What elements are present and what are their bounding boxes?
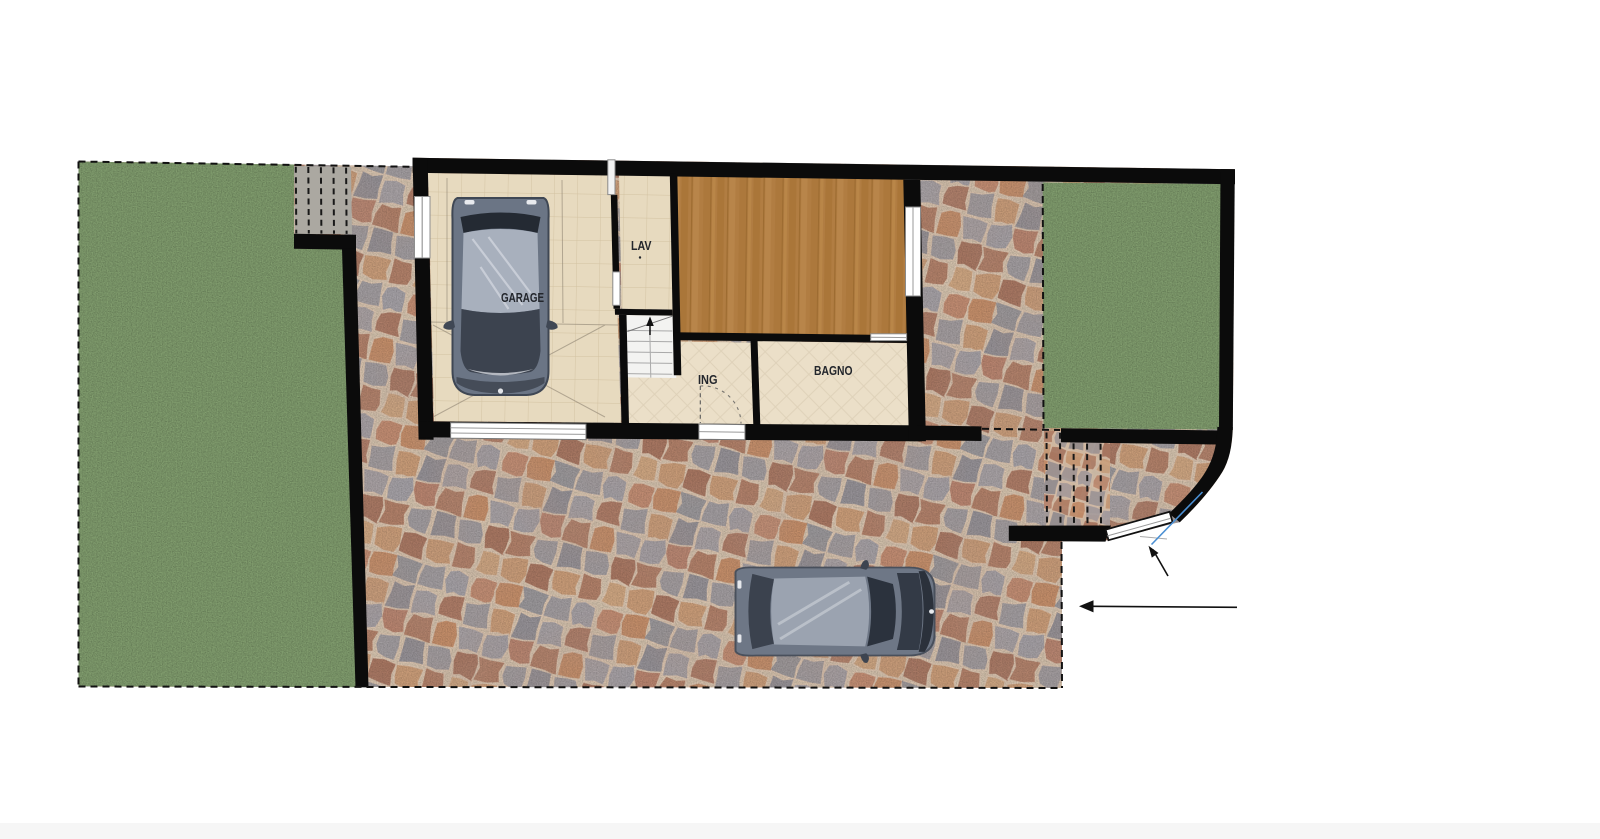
svg-text:GARAGE: GARAGE <box>501 291 544 305</box>
svg-text:BAGNO: BAGNO <box>814 364 853 378</box>
svg-text:ING: ING <box>698 373 718 387</box>
svg-text:LAV: LAV <box>631 239 652 253</box>
